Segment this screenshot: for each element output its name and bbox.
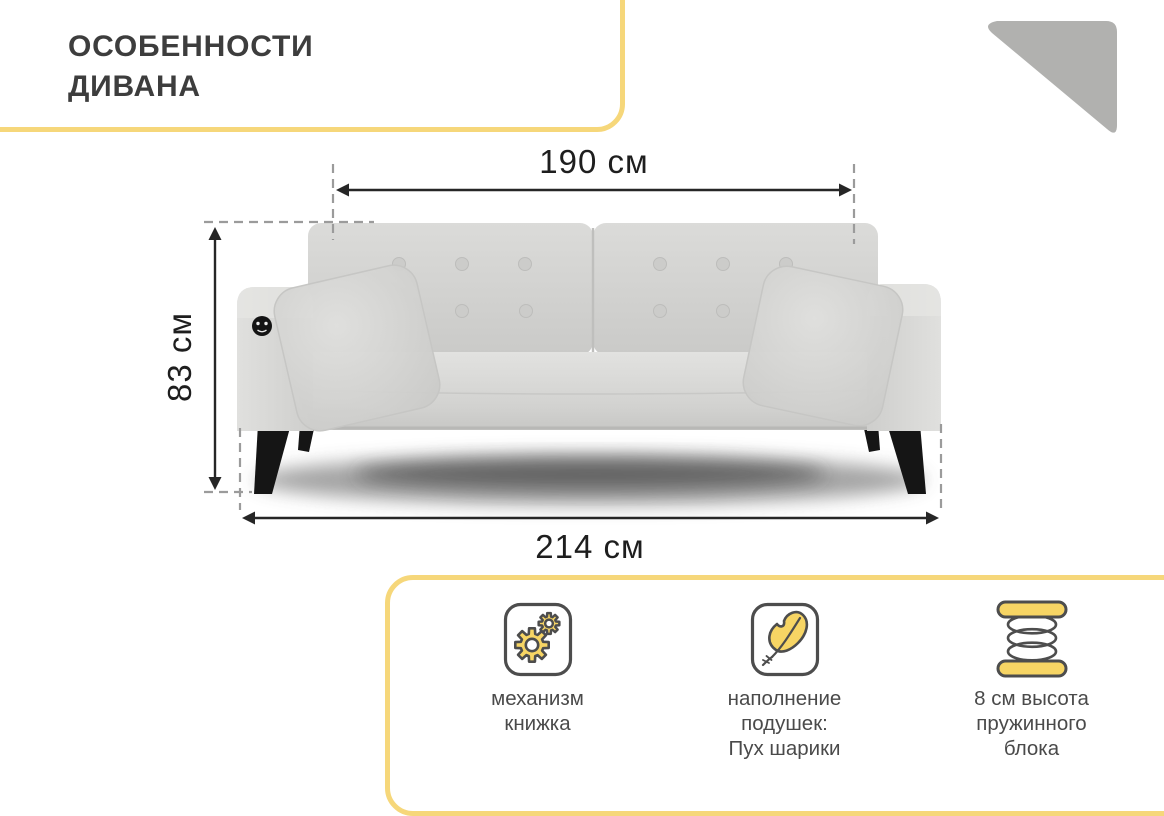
page-title: ОСОБЕННОСТИ ДИВАНА (68, 27, 313, 107)
dimension-bottom-width: 214 см (535, 528, 644, 565)
page-title-line1: ОСОБЕННОСТИ (68, 27, 313, 67)
arrow-height (209, 227, 222, 490)
sofa-pillow-left (269, 260, 444, 435)
features-row: механизм книжка наполнение подушек: Пух … (425, 597, 1144, 761)
corner-triangle-decoration (975, 14, 1135, 149)
spring-icon (995, 597, 1069, 681)
dimension-top-width: 190 см (539, 143, 648, 180)
title-card: ОСОБЕННОСТИ ДИВАНА (0, 0, 625, 132)
feature-label-spring: 8 см высота пружинного блока (974, 686, 1089, 761)
feature-label-filling: наполнение подушек: Пух шарики (728, 686, 842, 761)
page-title-line2: ДИВАНА (68, 67, 313, 107)
gears-icon (503, 597, 573, 681)
usb-socket (252, 316, 272, 336)
sofa-shadow (255, 455, 925, 505)
arrow-bottom-width (242, 512, 939, 525)
feature-item-mechanism: механизм книжка (425, 597, 650, 761)
sofa-pillow-right (739, 262, 907, 430)
feature-item-spring: 8 см высота пружинного блока (919, 597, 1144, 761)
feature-label-mechanism: механизм книжка (491, 686, 584, 736)
feature-item-filling: наполнение подушек: Пух шарики (672, 597, 897, 761)
arrow-top-width (336, 184, 852, 197)
feather-icon (750, 597, 820, 681)
dimension-height: 83 см (161, 312, 198, 402)
